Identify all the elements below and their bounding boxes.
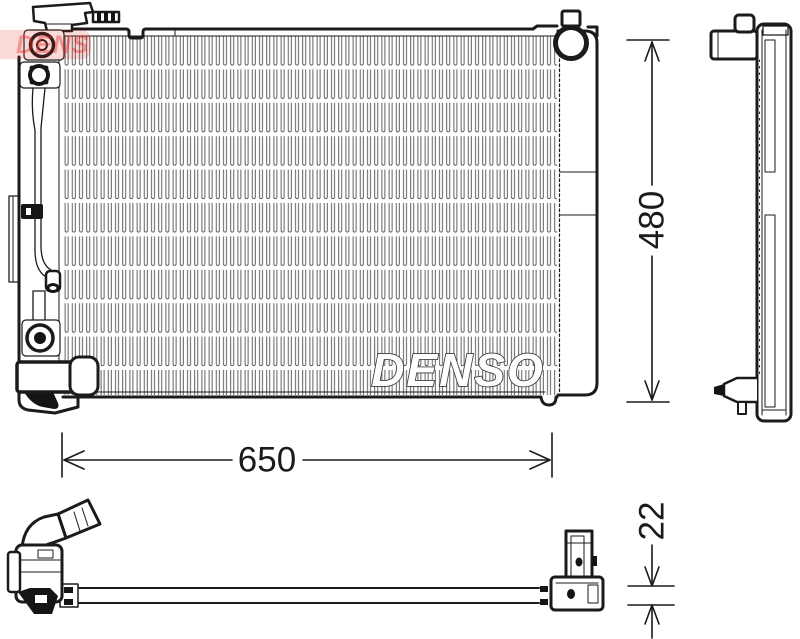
outlet-pipe <box>17 362 77 392</box>
side-view-cap <box>735 15 754 32</box>
bottom-bracket-body <box>551 577 603 610</box>
dimension-core-thickness <box>628 545 674 638</box>
dimension-width-label: 650 <box>238 441 296 480</box>
core-fin-area <box>63 36 557 395</box>
filler-neck-icon <box>556 28 587 59</box>
core-bottom-plate <box>63 397 557 405</box>
overflow-pipe <box>32 88 48 278</box>
denso-core-watermark: DENSO <box>371 344 545 396</box>
inlet-fitting <box>33 3 93 31</box>
dimension-core-width <box>62 433 552 477</box>
technical-drawing-canvas: DENSO DENSO <box>0 0 800 639</box>
radiator-bottom-view <box>8 500 603 614</box>
right-tank <box>558 31 597 395</box>
dimension-thickness-label: 22 <box>633 502 672 541</box>
side-view-bracket <box>724 378 757 402</box>
left-tank-fitting <box>21 204 43 219</box>
dimension-height-label: 480 <box>633 191 672 249</box>
radiator-side-view <box>711 15 791 421</box>
bottom-bracket-arm <box>566 531 592 583</box>
